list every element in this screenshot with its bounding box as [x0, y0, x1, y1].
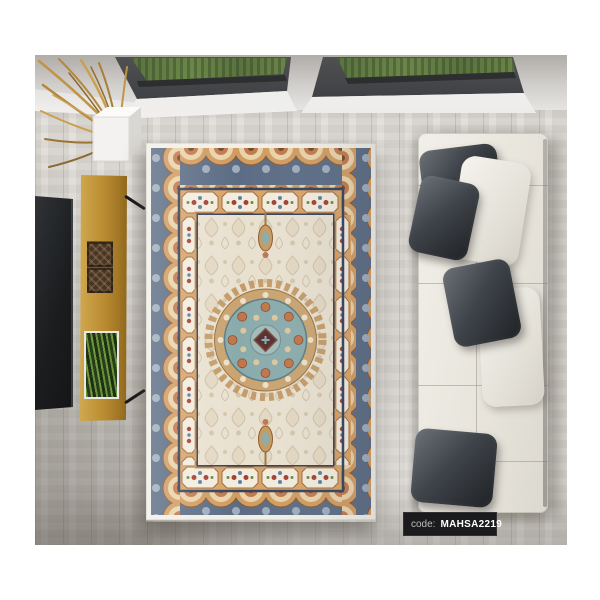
product-code-prefix: code:	[411, 519, 435, 530]
bench-bracket-bottom	[124, 389, 146, 405]
room-photo: code: MAHSA2219	[35, 55, 567, 545]
decor-box-2	[87, 267, 113, 293]
wall-planter-plant	[84, 331, 119, 399]
persian-rug	[146, 143, 376, 522]
dark-pillow-4	[410, 428, 498, 509]
branch-pot	[93, 107, 141, 161]
rug-lighting-overlay	[146, 143, 376, 520]
product-code-value: MAHSA2219	[440, 519, 502, 530]
sofa-back-edge	[543, 139, 547, 507]
product-code-label: code: MAHSA2219	[403, 512, 497, 536]
